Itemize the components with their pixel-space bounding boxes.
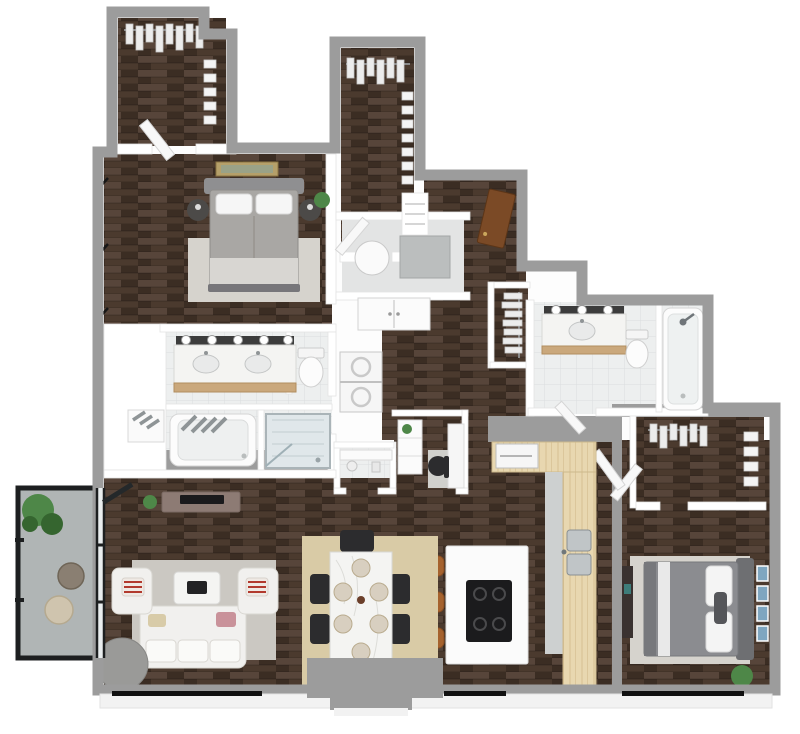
closet-shelves bbox=[402, 92, 413, 184]
wall-bath2-left bbox=[526, 300, 534, 416]
toilet-2 bbox=[626, 330, 648, 368]
plant-icon bbox=[314, 192, 330, 208]
plant-icon bbox=[402, 424, 412, 434]
accessory bbox=[372, 462, 380, 472]
plant-icon bbox=[143, 495, 157, 509]
toilet-tank bbox=[626, 330, 648, 339]
window-strip bbox=[112, 691, 262, 696]
wall bbox=[328, 332, 336, 396]
balcony-stool bbox=[58, 563, 84, 589]
hanging-clothes-icon bbox=[502, 293, 522, 353]
wall-tub2 bbox=[656, 304, 662, 412]
armchair-left bbox=[112, 568, 152, 614]
throw-pillow-floral bbox=[216, 612, 236, 627]
sink bbox=[245, 355, 271, 373]
wall-tub-band bbox=[166, 404, 332, 410]
wall bbox=[378, 488, 396, 494]
wall-bump-step bbox=[330, 694, 412, 710]
wall-powder-top bbox=[334, 442, 394, 448]
washer-dryer-stack bbox=[340, 352, 382, 412]
desk-chair-back bbox=[444, 456, 449, 478]
balcony bbox=[15, 488, 102, 658]
headboard bbox=[736, 558, 754, 660]
sheet-fold bbox=[658, 562, 670, 656]
bed-base bbox=[208, 284, 300, 292]
cabinet-face bbox=[545, 472, 563, 654]
floor-plan-render bbox=[0, 0, 800, 734]
shower-master bbox=[266, 414, 330, 468]
wall bbox=[334, 442, 340, 492]
sofa bbox=[140, 606, 246, 668]
dining-chair bbox=[310, 574, 330, 604]
drain-icon bbox=[316, 458, 321, 463]
laundry-basket bbox=[355, 241, 389, 275]
wall-closet3-left bbox=[630, 416, 636, 508]
toilet-master bbox=[298, 348, 324, 387]
wall-coatcloset-bottom bbox=[490, 362, 530, 368]
dining-chair bbox=[340, 530, 374, 552]
pillow bbox=[256, 194, 292, 214]
throw-pillow bbox=[148, 614, 166, 627]
wall bbox=[488, 282, 494, 368]
bathtub-2 bbox=[663, 308, 703, 410]
foot-blanket bbox=[644, 562, 656, 656]
wall-masterbath-top bbox=[160, 324, 336, 332]
sink bbox=[569, 322, 595, 340]
double-vanity bbox=[174, 345, 296, 392]
accent-pillow bbox=[714, 592, 727, 624]
wall-art-canvas bbox=[221, 165, 273, 173]
sink bbox=[347, 461, 357, 471]
toilet-bowl bbox=[299, 357, 323, 387]
coffee-table bbox=[174, 572, 220, 604]
single-vanity bbox=[542, 314, 626, 354]
tv bbox=[180, 495, 224, 504]
faucet-icon bbox=[204, 351, 208, 355]
coatcloset bbox=[502, 292, 522, 358]
dining-chair bbox=[390, 614, 410, 644]
window-strip bbox=[444, 691, 506, 696]
cooktop bbox=[466, 580, 512, 642]
wall bbox=[334, 488, 346, 494]
exterior-face bbox=[334, 708, 408, 716]
wall-coatcloset-top bbox=[490, 282, 530, 288]
seat-cushion bbox=[178, 640, 208, 662]
queen-bed-2 bbox=[644, 558, 754, 660]
drain-icon bbox=[242, 454, 247, 459]
plant-icon bbox=[731, 665, 753, 687]
seat-cushion bbox=[210, 640, 240, 662]
towel-niche bbox=[128, 410, 164, 442]
wall-living-top bbox=[104, 470, 336, 478]
toilet-bowl bbox=[626, 340, 648, 368]
kitchen-island bbox=[446, 546, 528, 664]
faucet-icon bbox=[580, 319, 584, 323]
sink bbox=[193, 355, 219, 373]
table-lamp-icon bbox=[195, 204, 201, 210]
dining-chair bbox=[390, 574, 410, 604]
table-lamp-icon bbox=[307, 204, 313, 210]
faucet-icon bbox=[562, 550, 567, 555]
decor-icon bbox=[624, 584, 631, 594]
dining-chair bbox=[310, 614, 330, 644]
dresser bbox=[622, 566, 633, 638]
wall-bump bbox=[307, 658, 443, 698]
storage-unit bbox=[400, 236, 450, 278]
pillow bbox=[216, 194, 252, 214]
wall-desknook-top bbox=[392, 410, 468, 416]
tray-icon bbox=[187, 581, 207, 594]
balcony-plant-icon bbox=[22, 516, 38, 532]
wall bbox=[456, 488, 468, 494]
wall bbox=[636, 502, 660, 510]
wall-tub-shower bbox=[258, 410, 264, 470]
balcony-stool bbox=[45, 596, 73, 624]
desk bbox=[448, 424, 464, 488]
queen-bed-1 bbox=[208, 190, 300, 292]
powder-counter bbox=[340, 450, 392, 460]
drain-icon bbox=[681, 394, 686, 399]
window-strip bbox=[622, 691, 744, 696]
armchair-right bbox=[238, 568, 278, 614]
seat-cushion bbox=[146, 640, 176, 662]
wall-closet3-bottom bbox=[688, 502, 766, 510]
floor-plan-svg bbox=[0, 0, 800, 734]
faucet-icon bbox=[256, 351, 260, 355]
wall-bedroom1-right bbox=[326, 154, 336, 304]
folded-blanket bbox=[210, 258, 298, 284]
counter-right-run bbox=[563, 472, 596, 688]
balcony-plant-icon bbox=[41, 513, 63, 535]
wall-mass-left bbox=[104, 324, 166, 470]
centerpiece-icon bbox=[357, 596, 365, 604]
wall-kitchen-bath2 bbox=[488, 416, 622, 442]
bathtub-master bbox=[170, 414, 256, 466]
